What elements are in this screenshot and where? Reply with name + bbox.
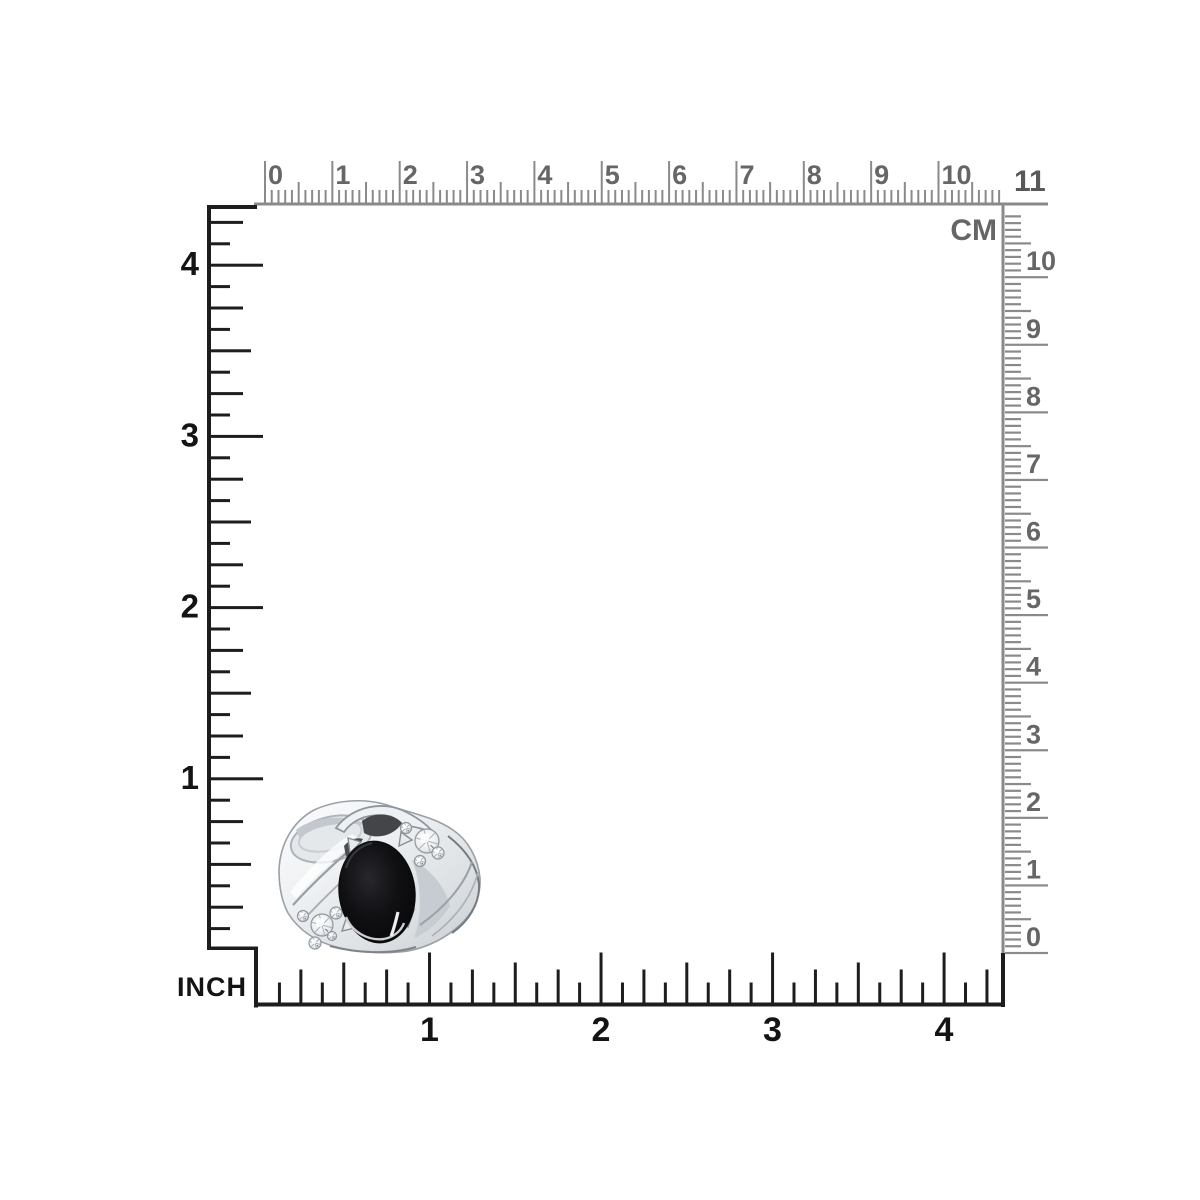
cm-tick <box>1005 776 1021 778</box>
inch-tick <box>211 649 243 652</box>
cm-tick <box>1005 492 1021 494</box>
cm-tick <box>823 190 825 205</box>
cm-tick <box>345 190 347 205</box>
inch-tick <box>211 735 243 738</box>
cm-tick <box>964 190 966 205</box>
inch-number-label: 2 <box>592 1011 611 1049</box>
cm-tick <box>1005 242 1031 244</box>
cm-tick <box>601 161 603 205</box>
cz-sparkle <box>417 858 421 862</box>
cm-tick <box>1005 688 1021 690</box>
cm-tick <box>628 190 630 205</box>
inch-tick <box>600 953 603 1003</box>
cm-tick <box>897 190 899 205</box>
cz-gem <box>298 911 309 922</box>
cm-tick <box>453 190 455 205</box>
cm-tick <box>574 190 576 205</box>
cz-gem <box>309 937 321 949</box>
inch-unit-label: INCH <box>177 972 247 1002</box>
cm-tick <box>1005 418 1021 420</box>
cm-tick <box>318 190 320 205</box>
cm-tick <box>1005 790 1021 792</box>
frame-corner-segment <box>254 947 258 1008</box>
cm-tick <box>1005 918 1031 920</box>
inch-tick <box>685 963 688 1003</box>
cm-tick <box>810 190 812 205</box>
cm-tick <box>412 190 414 205</box>
cm-tick <box>1005 553 1021 555</box>
cm-tick <box>1005 229 1021 231</box>
cm-tick <box>1005 567 1021 569</box>
cm-tick <box>1005 479 1048 481</box>
inch-tick <box>364 983 367 1003</box>
cm-tick <box>1005 864 1021 866</box>
inch-tick <box>750 983 753 1003</box>
cm-tick <box>520 190 522 205</box>
cz-sparkle <box>420 834 429 843</box>
cm-number-label: 1 <box>335 160 350 190</box>
cm-tick <box>1005 594 1021 596</box>
cm-tick <box>1005 905 1021 907</box>
inch-tick <box>921 983 924 1003</box>
cm-tick <box>756 190 758 205</box>
cm-tick <box>1005 560 1021 562</box>
cm-tick <box>1005 857 1021 859</box>
inch-number-label: 2 <box>181 588 199 625</box>
inch-tick <box>857 963 860 1003</box>
cm-tick <box>1005 215 1021 217</box>
cm-tick <box>1005 952 1048 954</box>
cm-tick <box>298 182 300 205</box>
cm-tick <box>399 161 401 205</box>
inch-tick <box>535 983 538 1003</box>
cm-tick <box>641 190 643 205</box>
inch-tick <box>771 953 774 1003</box>
cm-tick <box>621 190 623 205</box>
inch-tick <box>211 863 251 866</box>
inch-tick <box>211 371 230 374</box>
left-inch-ruler: 1234 <box>181 205 263 1008</box>
cz-sparkle <box>333 909 338 914</box>
inch-tick <box>211 285 230 288</box>
cm-number-label: 6 <box>672 160 687 190</box>
cm-tick <box>1005 519 1021 521</box>
cm-number-label: 9 <box>1026 314 1041 344</box>
cz-sparkle <box>316 918 324 926</box>
cm-tick <box>1005 817 1048 819</box>
cm-tick <box>1005 445 1031 447</box>
cm-tick <box>1005 729 1021 731</box>
cm-tick <box>1005 330 1021 332</box>
cm-tick <box>352 190 354 205</box>
cm-tick <box>1005 506 1021 508</box>
inch-tick <box>985 970 988 1003</box>
cm-number-label: 4 <box>1026 652 1041 682</box>
cm-tick <box>1005 695 1021 697</box>
cm-tick <box>480 190 482 205</box>
cm-tick <box>271 190 273 205</box>
cm-tick <box>1005 249 1021 251</box>
cm-tick <box>742 190 744 205</box>
cm-tick <box>493 190 495 205</box>
cm-tick <box>1005 411 1048 413</box>
cm-tick <box>1005 580 1031 582</box>
cm-tick <box>1005 844 1021 846</box>
cm-tick <box>917 190 919 205</box>
cm-tick <box>277 190 279 205</box>
cm-number-label: 4 <box>537 160 552 190</box>
cm-tick <box>1005 675 1021 677</box>
cm-tick <box>1005 682 1048 684</box>
cm-tick <box>311 190 313 205</box>
cz-sparkle <box>403 825 407 829</box>
cz-sparkle <box>435 849 440 854</box>
cm-tick <box>1005 513 1031 515</box>
cm-tick <box>594 190 596 205</box>
cm-tick <box>1005 932 1021 934</box>
cm-tick <box>1005 661 1021 663</box>
cm-tick <box>1005 742 1021 744</box>
cm-tick <box>466 161 468 205</box>
cm-tick <box>1005 634 1021 636</box>
cm-number-label: 8 <box>1026 381 1041 411</box>
inch-tick <box>211 563 243 566</box>
cm-tick <box>1005 465 1021 467</box>
cm-tick <box>419 190 421 205</box>
cm-tick <box>1005 425 1021 427</box>
cm-tick <box>1005 803 1021 805</box>
left-ruler-top-cap <box>207 205 257 209</box>
cm-tick <box>338 190 340 205</box>
inch-tick <box>642 970 645 1003</box>
cm-tick <box>1005 810 1021 812</box>
cm-tick <box>1005 621 1021 623</box>
cm-tick <box>513 190 515 205</box>
cm-tick <box>1005 371 1021 373</box>
cm-tick <box>931 190 933 205</box>
inch-tick <box>211 692 251 695</box>
inch-tick <box>211 392 243 395</box>
cm-tick <box>385 190 387 205</box>
inch-tick <box>211 606 263 609</box>
cm-tick <box>661 190 663 205</box>
inch-tick <box>211 349 251 352</box>
cm-tick <box>796 190 798 205</box>
cz-sparkle <box>312 939 317 944</box>
cm-tick <box>1005 526 1021 528</box>
cm-tick <box>527 190 529 205</box>
cm-number-label: 3 <box>470 160 485 190</box>
cm-tick <box>924 190 926 205</box>
cm-tick <box>762 190 764 205</box>
cm-tick <box>648 190 650 205</box>
cm-number-label: 5 <box>605 160 620 190</box>
cm-tick <box>715 190 717 205</box>
cm-tick <box>372 190 374 205</box>
cm-tick <box>1005 432 1021 434</box>
cm-tick <box>1005 452 1021 454</box>
cm-tick <box>655 190 657 205</box>
inch-number-label: 4 <box>935 1011 954 1049</box>
cm-tick <box>682 190 684 205</box>
cm-tick <box>830 190 832 205</box>
cm-tick <box>729 190 731 205</box>
inch-tick <box>299 970 302 1003</box>
cm-tick <box>836 182 838 205</box>
cm-tick <box>1005 486 1021 488</box>
inch-tick <box>449 983 452 1003</box>
cm-tick <box>1005 837 1021 839</box>
cm-tick <box>668 161 670 205</box>
cm-tick <box>1005 533 1021 535</box>
cm-number-label: 7 <box>1026 449 1041 479</box>
cm-tick <box>735 161 737 205</box>
cm-tick <box>702 182 704 205</box>
cm-tick <box>1005 763 1021 765</box>
cm-tick <box>1005 384 1021 386</box>
cm-tick <box>769 182 771 205</box>
cm-tick <box>378 190 380 205</box>
cm-tick <box>1005 222 1021 224</box>
inch-tick <box>514 963 517 1003</box>
cm-tick <box>1005 573 1021 575</box>
cm-number-label: 3 <box>1026 719 1041 749</box>
cm-tick <box>607 190 609 205</box>
cm-tick <box>1005 884 1048 886</box>
inch-number-label: 1 <box>420 1011 439 1049</box>
cm-tick <box>1005 641 1021 643</box>
cm-tick <box>1005 911 1021 913</box>
inch-tick <box>407 983 410 1003</box>
cm-tick <box>1005 296 1021 298</box>
cm-tick <box>985 190 987 205</box>
cm-tick <box>506 190 508 205</box>
inch-tick <box>211 906 243 909</box>
cm-number-label: 0 <box>268 160 283 190</box>
cm-tick <box>1005 391 1021 393</box>
inch-tick <box>211 307 243 310</box>
inch-number-label: 3 <box>763 1011 782 1049</box>
cm-tick <box>1005 783 1031 785</box>
cm-tick <box>1005 709 1021 711</box>
cm-tick <box>1005 823 1021 825</box>
left-ruler-bottom-cap <box>207 947 258 951</box>
size-chart: 01234567891011 012345678910 1234 1234 CM… <box>0 0 1200 1200</box>
cm-tick <box>1005 269 1021 271</box>
inch-tick <box>278 983 281 1003</box>
cm-tick <box>284 190 286 205</box>
inch-tick <box>211 221 243 224</box>
cm-tick <box>857 190 859 205</box>
bottom-ruler-baseline <box>254 1003 1005 1007</box>
cm-tick <box>1005 317 1021 319</box>
cm-tick <box>1005 736 1021 738</box>
top-cm-ruler: 01234567891011 <box>254 160 1048 206</box>
cm-tick <box>1005 323 1021 325</box>
cz-sparkle <box>329 933 332 936</box>
cm-tick <box>850 190 852 205</box>
inch-number-label: 1 <box>181 759 199 796</box>
cm-tick <box>1005 648 1031 650</box>
inch-tick <box>728 970 731 1003</box>
inch-tick <box>211 499 230 502</box>
inch-tick <box>211 328 230 331</box>
inch-tick <box>211 842 230 845</box>
cm-tick <box>1005 830 1021 832</box>
cm-tick <box>1005 290 1021 292</box>
cm-tick <box>958 190 960 205</box>
cm-tick <box>675 190 677 205</box>
cm-tick <box>978 190 980 205</box>
cm-tick <box>991 190 993 205</box>
inch-tick <box>578 983 581 1003</box>
cm-number-label: 10 <box>942 160 972 190</box>
cm-tick <box>1005 357 1021 359</box>
cm-tick <box>904 182 906 205</box>
cm-tick <box>1005 236 1021 238</box>
cm-tick <box>1005 263 1021 265</box>
inch-tick <box>943 953 946 1003</box>
cz-gem <box>330 907 342 919</box>
cm-tick <box>540 190 542 205</box>
cm-tick <box>749 190 751 205</box>
cm-tick <box>358 190 360 205</box>
inch-tick <box>707 983 710 1003</box>
cm-tick <box>1005 925 1021 927</box>
bottom-inch-ruler: 1234 <box>254 953 1005 1050</box>
inch-tick <box>621 983 624 1003</box>
cm-tick <box>1005 310 1031 312</box>
cm-tick <box>1005 344 1048 346</box>
cm-tick <box>634 182 636 205</box>
cm-tick <box>877 190 879 205</box>
inch-tick <box>211 585 230 588</box>
cm-tick <box>1005 898 1021 900</box>
cm-tick <box>1005 398 1021 400</box>
cm-tick <box>1005 891 1021 893</box>
cm-tick <box>776 190 778 205</box>
cm-number-label: 2 <box>403 160 418 190</box>
cm-tick <box>998 190 1000 205</box>
cm-tick <box>486 190 488 205</box>
cm-tick <box>803 161 805 205</box>
cm-tick <box>392 190 394 205</box>
inch-tick <box>342 963 345 1003</box>
cm-tick <box>1005 607 1021 609</box>
cm-tick <box>291 190 293 205</box>
cm-tick <box>581 190 583 205</box>
inch-tick <box>211 264 263 267</box>
cm-tick <box>911 190 913 205</box>
cm-number-label: 8 <box>807 160 822 190</box>
cz-gem <box>415 856 426 867</box>
cm-tick <box>816 190 818 205</box>
cm-tick <box>1005 938 1021 940</box>
frame-corner-segment <box>1001 953 1005 1007</box>
cm-tick <box>1005 628 1021 630</box>
inch-tick <box>211 756 230 759</box>
cm-tick <box>688 190 690 205</box>
cm-tick <box>264 161 266 205</box>
cm-number-label: 10 <box>1026 246 1056 276</box>
cm-tick <box>1005 377 1031 379</box>
inch-tick <box>211 799 230 802</box>
cm-tick <box>863 190 865 205</box>
left-ruler-line <box>207 205 211 950</box>
inch-tick <box>664 983 667 1003</box>
cm-number-label: 5 <box>1026 584 1041 614</box>
cm-tick <box>432 182 434 205</box>
cm-tick <box>587 190 589 205</box>
cm-tick <box>1005 499 1021 501</box>
cm-tick <box>1005 350 1021 352</box>
cm-tick <box>1005 546 1048 548</box>
cm-tick <box>325 190 327 205</box>
right-ruler-line <box>1002 204 1005 1005</box>
cm-unit-label: CM <box>950 214 997 247</box>
cm-number-label: 6 <box>1026 517 1041 547</box>
cz-sparkle <box>300 913 304 917</box>
inch-tick <box>211 414 230 417</box>
cm-tick <box>1005 655 1021 657</box>
cm-tick <box>1005 540 1021 542</box>
cm-tick <box>709 190 711 205</box>
cm-tick <box>1005 276 1048 278</box>
cm-tick <box>567 182 569 205</box>
inch-tick <box>211 521 251 524</box>
cm-number-label: 1 <box>1026 854 1041 884</box>
cm-number-label: 0 <box>1026 922 1041 952</box>
cm-number-label: 9 <box>874 160 889 190</box>
inch-tick <box>964 983 967 1003</box>
cm-tick <box>614 190 616 205</box>
ring-photo <box>279 801 480 953</box>
cm-tick <box>1005 303 1021 305</box>
cm-tick <box>1005 438 1021 440</box>
cm-tick <box>1005 749 1048 751</box>
inch-tick <box>211 628 230 631</box>
inch-tick <box>211 478 243 481</box>
cm-tick <box>789 190 791 205</box>
cm-tick <box>843 190 845 205</box>
inch-tick <box>900 970 903 1003</box>
cm-tick <box>1005 702 1021 704</box>
cz-gem <box>328 932 337 941</box>
inch-tick <box>814 970 817 1003</box>
inch-tick <box>385 970 388 1003</box>
inch-tick <box>211 820 243 823</box>
cz-gem <box>401 823 412 834</box>
cm-number-label-11: 11 <box>1014 165 1046 198</box>
cm-tick <box>890 190 892 205</box>
cm-tick <box>1005 769 1021 771</box>
cm-tick <box>944 190 946 205</box>
cm-tick <box>1005 256 1021 258</box>
cm-tick <box>459 190 461 205</box>
cm-tick <box>426 190 428 205</box>
cm-tick <box>1005 878 1021 880</box>
cm-tick <box>533 161 535 205</box>
inch-number-label: 3 <box>181 416 199 453</box>
cm-tick <box>473 190 475 205</box>
cm-tick <box>554 190 556 205</box>
cm-tick <box>1005 587 1021 589</box>
inch-tick <box>211 670 230 673</box>
inch-tick <box>211 927 230 930</box>
cm-tick <box>1005 722 1021 724</box>
inch-tick <box>557 970 560 1003</box>
cm-tick <box>439 190 441 205</box>
